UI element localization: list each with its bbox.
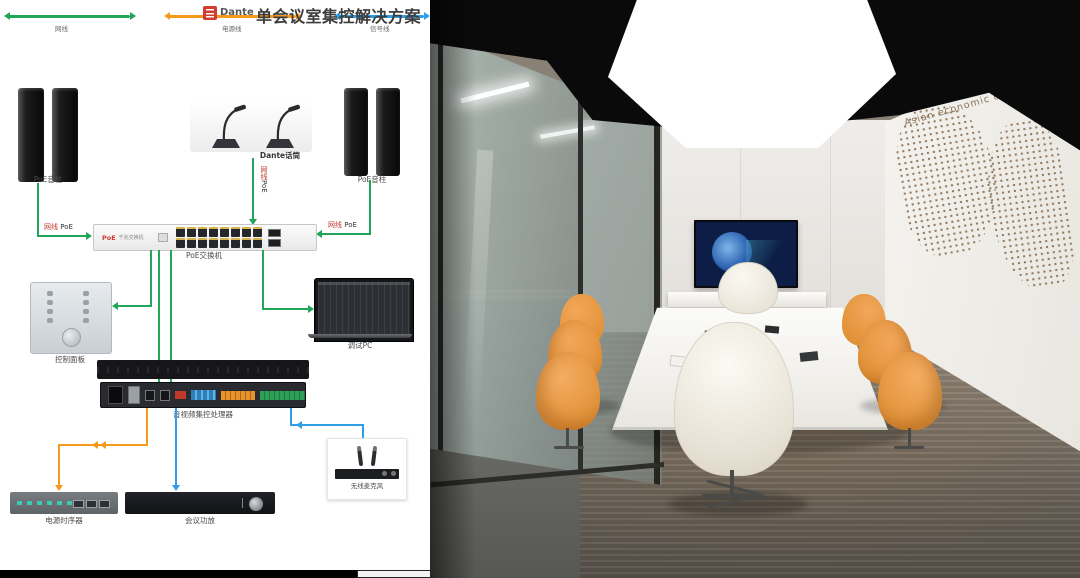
- chair-stem: [566, 428, 569, 448]
- sequencer-outlet: [86, 500, 97, 508]
- rj45-port: [253, 238, 262, 248]
- sfp-port: [268, 229, 281, 237]
- chair-orange: [878, 352, 942, 430]
- speakers-right-label: PoE音柱: [332, 176, 412, 184]
- rj45-port: [231, 227, 240, 237]
- panel-button: [83, 291, 89, 296]
- power-cable-arrow: [55, 485, 63, 491]
- page-title: 单会议室集控解决方案: [256, 3, 421, 27]
- rack-blank-unit: [97, 360, 309, 379]
- power-cable: [146, 408, 148, 446]
- amp-knob: [249, 497, 263, 511]
- rj45-port: [242, 238, 251, 248]
- rj45-port: [176, 238, 185, 248]
- rj45-port: [187, 238, 196, 248]
- switch-face-brand: PoE: [102, 234, 116, 242]
- cable-label-net: 网线: [328, 221, 342, 229]
- signal-cable: [175, 408, 177, 486]
- legend-label-power: 电源线: [222, 23, 242, 33]
- ethernet-port: [145, 390, 155, 401]
- terminal-block-blue: [191, 390, 216, 400]
- rj45-port: [187, 227, 196, 237]
- legend-label-network: 网线: [55, 23, 68, 33]
- panel-button: [83, 318, 89, 323]
- terminal-block-green: [260, 391, 305, 400]
- poe-column-speaker: [18, 88, 44, 182]
- panel-buttons: [47, 291, 95, 323]
- brand-logo-text: Dante: [220, 7, 254, 18]
- laptop-base: [308, 334, 412, 338]
- rj45-port: [176, 227, 185, 237]
- net-cable-arrow: [112, 302, 118, 310]
- cable-label: 网线 PoE: [44, 222, 73, 232]
- legend-arrow: [4, 12, 10, 20]
- legend-arrow: [164, 12, 170, 20]
- rj45-port: [209, 238, 218, 248]
- net-cable: [252, 158, 254, 220]
- wireless-label: 无线麦克风: [328, 483, 406, 490]
- laptop-label: 调试PC: [320, 342, 400, 350]
- chair-orange: [536, 352, 600, 430]
- panel-button: [47, 318, 53, 323]
- gooseneck-mic-icon: [190, 100, 312, 152]
- mic-receiver: [335, 469, 399, 479]
- amp-slot: [242, 498, 243, 508]
- panel-button: [47, 291, 53, 296]
- corridor-ceiling-light: [540, 125, 595, 138]
- poe-switch: PoE 千兆交换机: [93, 224, 317, 251]
- rj45-port: [209, 227, 218, 237]
- panel-button: [83, 300, 89, 305]
- rj45-port: [231, 238, 240, 248]
- brand-logo-icon: [203, 6, 217, 20]
- cable-label-poe: PoE: [344, 221, 357, 229]
- wireless-mic-set: 无线麦克风: [327, 438, 407, 500]
- switch-face-text: 千兆交换机: [119, 234, 144, 241]
- chair-white-far: [718, 262, 778, 314]
- ethernet-port: [160, 390, 170, 401]
- poe-column-speaker: [52, 88, 78, 182]
- net-cable: [369, 180, 371, 235]
- wall-control-panel: [30, 282, 112, 354]
- power-inlet: [108, 386, 123, 404]
- rj45-port: [198, 238, 207, 248]
- chair-base: [894, 446, 924, 449]
- panel-button: [83, 309, 89, 314]
- speakers-left-label: PoE音柱: [8, 176, 88, 184]
- power-cable-chevron: [92, 441, 98, 449]
- cable-label-poe: PoE: [60, 223, 73, 231]
- signal-cable-chevron: [296, 421, 302, 429]
- power-cable: [58, 444, 60, 486]
- sequencer-outlet: [99, 500, 110, 508]
- power-cable-chevron: [100, 441, 106, 449]
- net-cable: [262, 250, 264, 310]
- debug-laptop: [314, 278, 414, 342]
- processor-label: 音视频集控处理器: [153, 411, 253, 419]
- panel-button: [47, 300, 53, 305]
- cable-label-vertical: 网线PoE: [259, 166, 269, 193]
- rj45-port: [198, 227, 207, 237]
- net-cable: [37, 235, 86, 237]
- receiver-knob: [382, 471, 387, 476]
- legend-line-network: [8, 15, 130, 18]
- world-map-dots: [979, 115, 1080, 294]
- panel-knob: [62, 328, 81, 347]
- chair-base: [554, 446, 584, 449]
- handheld-mic: [371, 446, 377, 466]
- sequencer-leds: [17, 501, 72, 505]
- conference-amplifier: [125, 492, 275, 514]
- poe-column-speaker: [344, 88, 368, 176]
- table-item: [800, 351, 819, 362]
- cable-label: 网线 PoE: [328, 220, 357, 230]
- switch-dip: [158, 233, 168, 242]
- net-cable: [262, 308, 308, 310]
- sequencer-outlet: [73, 500, 84, 508]
- net-cable: [118, 305, 152, 307]
- cable-label-net: 网线: [44, 223, 58, 231]
- power-sequencer: [10, 492, 118, 514]
- handheld-mic: [357, 446, 363, 466]
- switch-port-bank: [176, 227, 262, 248]
- signal-cable-arrow: [172, 485, 180, 491]
- av-processor: [100, 382, 306, 408]
- solution-diagram-panel: 网线 电源线 信号线 Dante 单会议室集控解决方案 PoE音柱 PoE音柱: [0, 0, 430, 570]
- net-cable-arrow: [86, 232, 92, 240]
- wall-seam: [830, 120, 831, 334]
- rj45-port: [220, 227, 229, 237]
- poe-column-speaker: [376, 88, 400, 176]
- dante-mic-image: [190, 100, 312, 152]
- terminal-block-orange: [221, 391, 255, 400]
- chair-stem: [730, 470, 734, 496]
- table-item: [765, 325, 780, 333]
- switch-sfp-ports: [268, 229, 281, 247]
- net-cable: [37, 183, 39, 237]
- sfp-port: [268, 239, 281, 247]
- legend-arrow: [130, 12, 136, 20]
- meeting-room-photo: Asian economic development: [430, 0, 1080, 578]
- sequencer-label: 电源时序器: [10, 517, 118, 525]
- amp-label: 会议功放: [150, 517, 250, 525]
- receiver-knob: [391, 471, 396, 476]
- cable-label-poe: PoE: [260, 180, 268, 193]
- mixer-software-screen: [318, 282, 410, 338]
- panel-button: [47, 309, 53, 314]
- net-cable: [150, 250, 152, 307]
- net-cable: [322, 233, 371, 235]
- switch-label: PoE交换机: [164, 252, 244, 260]
- chair-stem: [908, 428, 911, 448]
- rj45-port: [242, 227, 251, 237]
- io-module: [128, 386, 140, 404]
- rj45-port: [253, 227, 262, 237]
- terminal-block-red: [175, 391, 186, 399]
- photo-left-vignette: [430, 0, 476, 578]
- screenshot: 网线 电源线 信号线 Dante 单会议室集控解决方案 PoE音柱 PoE音柱: [0, 0, 1080, 578]
- cable-label-net: 网线: [260, 166, 268, 180]
- rj45-port: [220, 238, 229, 248]
